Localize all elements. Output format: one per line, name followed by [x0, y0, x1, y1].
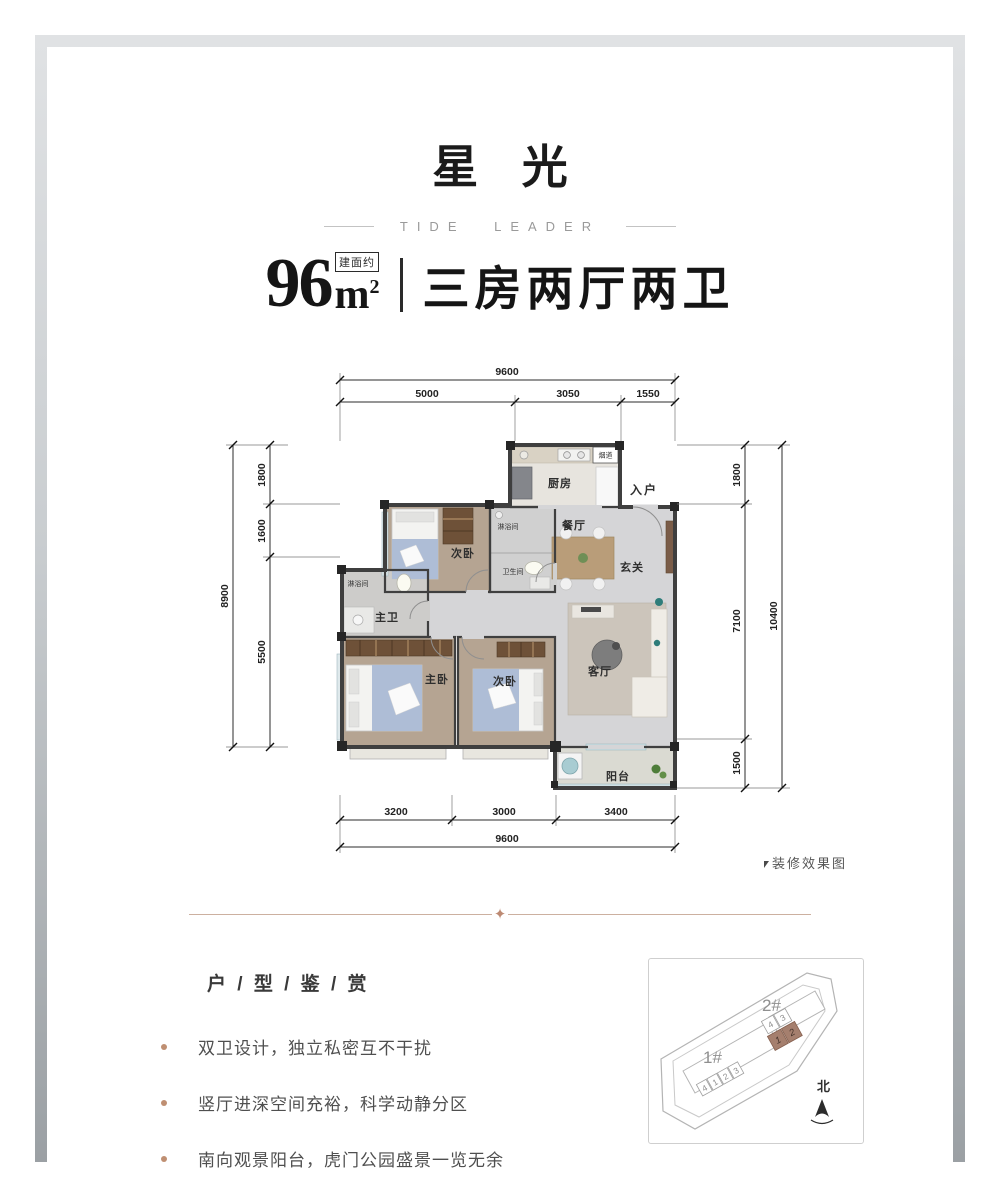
sink	[520, 451, 528, 459]
tv	[581, 607, 601, 612]
burner	[578, 452, 585, 459]
dim-top-seg1: 5000	[415, 388, 439, 400]
area-unit-letter: m	[335, 272, 370, 318]
dim-top-seg2: 3050	[556, 388, 580, 400]
left-dash-ornament	[324, 226, 374, 227]
fridge	[512, 467, 532, 499]
bedroom-bottom-shelf	[497, 642, 545, 657]
dim-top-overall: 9600	[495, 366, 519, 378]
toilet	[525, 562, 543, 575]
dim-right-seg1: 1800	[731, 463, 743, 487]
shower-left-label: 淋浴间	[348, 579, 369, 588]
hob	[558, 449, 590, 461]
layout-text: 三房两厅两卫	[423, 250, 735, 319]
shower-head	[496, 512, 503, 519]
dim-left-seg1: 1800	[256, 463, 268, 487]
side-table	[612, 642, 620, 650]
bathroom-label: 卫生间	[503, 567, 524, 576]
divider-line	[189, 914, 492, 915]
washer-drum	[562, 758, 578, 774]
master-bath-label: 主卫	[375, 610, 399, 624]
dim-right-seg2: 7100	[731, 609, 743, 633]
area-group: 96 建面约 m2	[266, 252, 380, 316]
dining-label: 餐厅	[561, 518, 586, 532]
section-divider: ✦	[189, 907, 811, 922]
dim-bottom-overall: 9600	[495, 833, 519, 845]
foyer-label: 玄关	[620, 560, 644, 574]
area-unit-column: 建面约 m2	[335, 252, 380, 314]
feature-text: 竖厅进深空间充裕，科学动静分区	[198, 1090, 468, 1115]
site-map-svg: 4 1 2 3 4 3 1 2 1# 2# 北	[649, 959, 863, 1143]
render-note-text: 装修效果图	[772, 856, 847, 871]
building-1-label: 1#	[703, 1048, 722, 1067]
building-2-label: 2#	[762, 996, 781, 1015]
dim-bottom-seg3: 3400	[604, 806, 628, 818]
area-unit-sup: 2	[370, 276, 380, 298]
floor-plan: 厨房 烟道 入户 餐厅 玄关 次卧 淋浴间 卫生间 淋浴间 主卫 主卧 次卧 客…	[200, 355, 800, 895]
dims-bottom: 3200 3000 3400 9600	[336, 795, 679, 853]
right-dash-ornament	[626, 226, 676, 227]
entry-label: 入户	[630, 482, 658, 497]
spec-divider-bar	[400, 258, 403, 312]
area-badge: 建面约	[335, 252, 379, 272]
dim-top-seg3: 1550	[636, 388, 660, 400]
basin	[353, 615, 363, 625]
note-marker-icon	[764, 861, 769, 868]
chaise	[632, 677, 667, 717]
dims-left: 8900 1800 1600 5500	[219, 441, 340, 751]
list-item: 南向观景阳台，虎门公园盛景一览无余	[161, 1146, 504, 1171]
dim-bottom-seg1: 3200	[384, 806, 408, 818]
divider-line	[508, 914, 811, 915]
bedroom-top-label: 次卧	[451, 546, 475, 560]
dim-left-overall: 8900	[219, 584, 231, 608]
chair	[560, 578, 572, 590]
plant-pot	[655, 598, 663, 606]
list-item: 双卫设计，独立私密互不干扰	[161, 1034, 504, 1059]
subtitle-row: TIDE LEADER	[47, 219, 953, 234]
chair	[593, 578, 605, 590]
list-item: 竖厅进深空间充裕，科学动静分区	[161, 1090, 504, 1115]
site-map: 4 1 2 3 4 3 1 2 1# 2# 北	[648, 958, 864, 1144]
gradient-frame-border: 星 光 TIDE LEADER 96 建面约 m2 三房两厅两卫	[35, 35, 965, 1162]
cabinet	[596, 467, 618, 507]
subtitle-text: TIDE LEADER	[400, 219, 600, 234]
features-title: 户 / 型 / 鉴 / 赏	[207, 969, 504, 996]
dim-bottom-seg2: 3000	[492, 806, 516, 818]
shower-top-label: 淋浴间	[498, 522, 519, 531]
dim-left-seg3: 5500	[256, 640, 268, 664]
bedroom-top-bed	[392, 509, 438, 579]
flue-label: 烟道	[599, 451, 613, 460]
toilet	[397, 574, 411, 592]
balcony-label: 阳台	[606, 769, 630, 783]
features-section: 户 / 型 / 鉴 / 赏 双卫设计，独立私密互不干扰 竖厅进深空间充裕，科学动…	[207, 969, 504, 1202]
north-label: 北	[817, 1079, 830, 1094]
balcony-plant	[660, 772, 667, 779]
dim-left-seg2: 1600	[256, 519, 268, 543]
floor-plan-svg: 厨房 烟道 入户 餐厅 玄关 次卧 淋浴间 卫生间 淋浴间 主卫 主卧 次卧 客…	[200, 355, 800, 895]
master-bed	[346, 665, 422, 731]
area-unit: m2	[335, 277, 380, 315]
spec-row: 96 建面约 m2 三房两厅两卫	[47, 250, 953, 319]
bullet-dot-icon	[161, 1044, 167, 1050]
dims-right: 1800 7100 1500 10400	[677, 441, 790, 792]
bullet-dot-icon	[161, 1156, 167, 1162]
compass-icon	[811, 1099, 833, 1124]
dims-top: 9600 5000 3050 1550	[336, 366, 679, 441]
living-label: 客厅	[587, 664, 612, 678]
render-note: 装修效果图	[764, 853, 847, 872]
feature-text: 南向观景阳台，虎门公园盛景一览无余	[198, 1146, 504, 1171]
table-plant	[578, 553, 588, 563]
burner	[564, 452, 571, 459]
kitchen-label: 厨房	[548, 476, 572, 490]
vanity	[530, 577, 550, 589]
dim-right-seg3: 1500	[731, 751, 743, 775]
chair	[593, 527, 605, 539]
bedroom-bottom-label: 次卧	[493, 674, 517, 688]
bullet-dot-icon	[161, 1100, 167, 1106]
master-wardrobe	[346, 640, 452, 656]
dim-right-overall: 10400	[768, 601, 780, 630]
area-value: 96	[266, 252, 332, 316]
bedroom-top-shelf	[443, 508, 473, 544]
features-list: 双卫设计，独立私密互不干扰 竖厅进深空间充裕，科学动静分区 南向观景阳台，虎门公…	[161, 1034, 504, 1171]
balcony-plant	[652, 765, 661, 774]
feature-text: 双卫设计，独立私密互不干扰	[198, 1034, 432, 1059]
poster-page: 星 光 TIDE LEADER 96 建面约 m2 三房两厅两卫	[47, 47, 953, 1162]
master-bedroom-label: 主卧	[425, 672, 449, 686]
page-title: 星 光	[47, 131, 953, 197]
cushion	[654, 640, 660, 646]
diamond-ornament-icon: ✦	[494, 907, 507, 922]
